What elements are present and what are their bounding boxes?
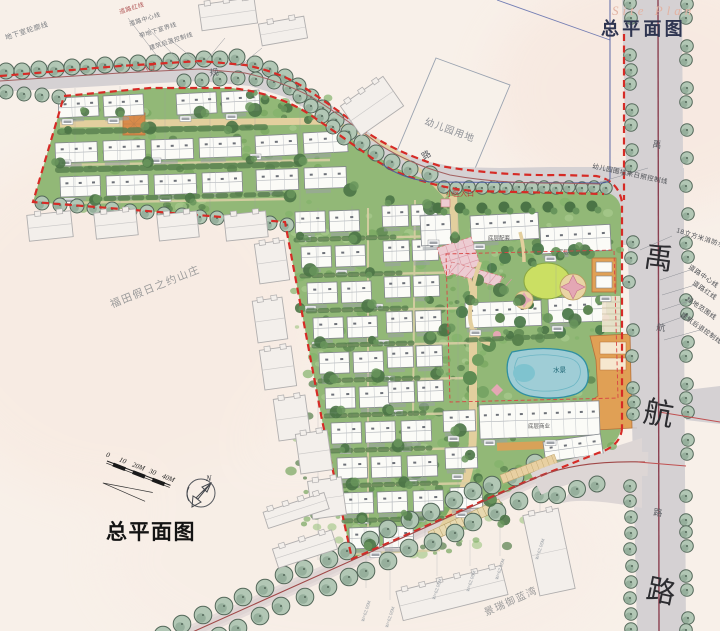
svg-text:禹: 禹 — [642, 241, 675, 277]
svg-text:禹: 禹 — [652, 138, 663, 150]
svg-text:Site Plan: Site Plan — [612, 3, 695, 18]
svg-text:总平面图: 总平面图 — [601, 18, 686, 39]
svg-text:水景: 水景 — [553, 365, 567, 374]
svg-text:总平面图: 总平面图 — [106, 520, 196, 544]
svg-text:航: 航 — [656, 321, 667, 333]
svg-text:底层商业: 底层商业 — [528, 422, 551, 430]
svg-text:小区入口: 小区入口 — [446, 189, 474, 198]
svg-text:航: 航 — [641, 395, 676, 433]
svg-text:底层配套: 底层配套 — [488, 234, 511, 242]
svg-text:入口: 入口 — [142, 64, 155, 72]
svg-text:路: 路 — [653, 506, 664, 518]
svg-text:N: N — [205, 474, 212, 483]
svg-text:规: 规 — [209, 67, 220, 78]
